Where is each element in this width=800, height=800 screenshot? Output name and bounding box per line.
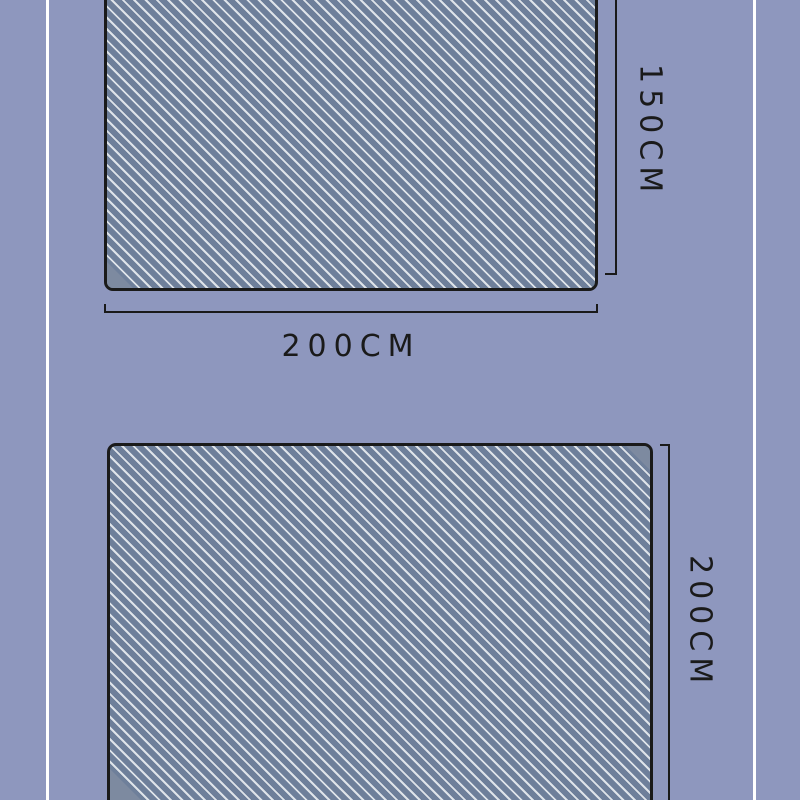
folded-corner-bottom-left: [110, 769, 158, 800]
height-dimension-line-bottom: [668, 444, 670, 800]
page-divider-left: [46, 0, 49, 800]
height-label-top: 150CM: [629, 31, 671, 231]
page-divider-right: [753, 0, 756, 800]
dimension-tick-right: [596, 304, 598, 313]
dimension-tick-bottom: [605, 273, 617, 275]
height-label-bottom: 200CM: [679, 522, 721, 722]
folded-corner-top-right: [626, 446, 650, 470]
blanket-illustration-top: [104, 0, 598, 291]
blanket-illustration-bottom: [107, 443, 653, 800]
page-background: 200CM 150CM 200CM: [0, 0, 800, 800]
dimension-tick-left: [104, 304, 106, 313]
height-dimension-line-top: [615, 0, 617, 275]
folded-corner-bottom-left: [107, 262, 133, 288]
width-label-top: 200CM: [104, 329, 598, 364]
width-dimension-line-top: [104, 311, 598, 313]
dimension-tick-top: [660, 444, 670, 446]
